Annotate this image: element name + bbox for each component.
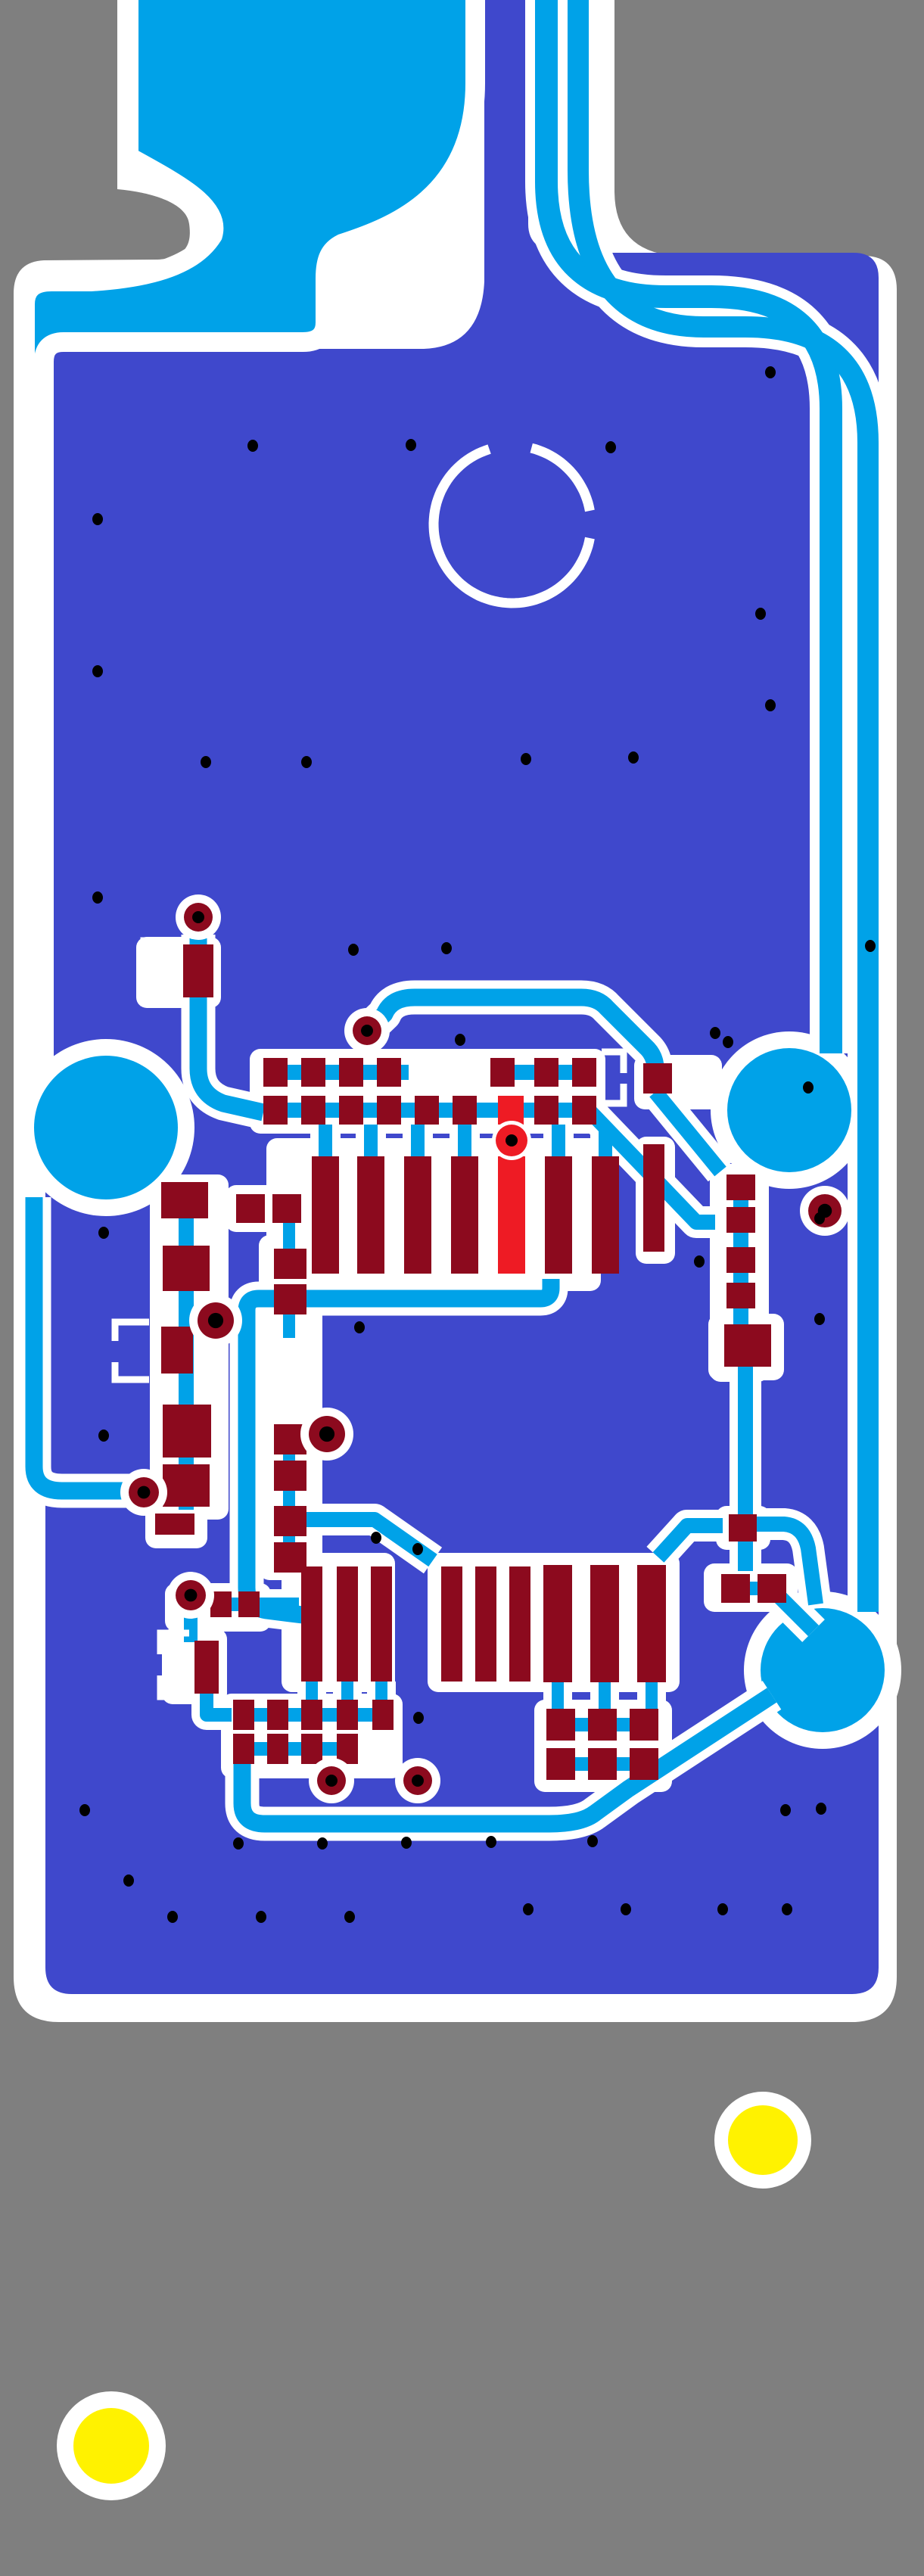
via-drill-icon bbox=[361, 1025, 373, 1037]
drill-dot bbox=[765, 699, 776, 711]
drill-dot bbox=[717, 1903, 728, 1915]
smd-pad[interactable] bbox=[163, 1405, 211, 1458]
smd-pad[interactable] bbox=[233, 1700, 254, 1730]
smd-pad[interactable] bbox=[630, 1748, 658, 1780]
smd-pad[interactable] bbox=[238, 1591, 260, 1617]
drill-dot bbox=[628, 751, 639, 764]
smd-pad[interactable] bbox=[534, 1096, 558, 1125]
smd-pad[interactable] bbox=[415, 1096, 439, 1125]
via-drill-icon bbox=[506, 1134, 518, 1146]
smd-pad[interactable] bbox=[301, 1058, 325, 1087]
mounting-hole[interactable] bbox=[73, 2408, 149, 2484]
smd-pad[interactable] bbox=[337, 1700, 358, 1730]
drill-dot bbox=[710, 1027, 720, 1039]
drill-dot bbox=[587, 1835, 598, 1847]
drill-dot bbox=[401, 1837, 412, 1849]
smd-pad[interactable] bbox=[637, 1565, 666, 1682]
drill-dot bbox=[455, 1034, 465, 1046]
drill-dot bbox=[413, 1712, 424, 1724]
smd-pad[interactable] bbox=[630, 1709, 658, 1741]
smd-pad[interactable] bbox=[475, 1566, 496, 1682]
smd-pad[interactable] bbox=[155, 1514, 194, 1535]
drill-dot bbox=[233, 1837, 244, 1850]
via-drill-icon bbox=[208, 1313, 223, 1328]
drill-dot bbox=[201, 756, 211, 768]
smd-pad[interactable] bbox=[372, 1700, 394, 1730]
via-drill-icon bbox=[192, 911, 204, 923]
drill-dot bbox=[814, 1313, 825, 1325]
via-drill-icon bbox=[412, 1775, 424, 1787]
smd-pad[interactable] bbox=[301, 1096, 325, 1125]
smd-pad[interactable] bbox=[721, 1574, 750, 1603]
drill-dot bbox=[317, 1837, 328, 1850]
smd-pad[interactable] bbox=[590, 1565, 619, 1682]
smd-pad[interactable] bbox=[377, 1058, 401, 1087]
drill-dot bbox=[723, 1036, 733, 1048]
smd-pad[interactable] bbox=[729, 1514, 757, 1542]
drill-dot bbox=[523, 1903, 534, 1915]
copper-pour-circle[interactable] bbox=[727, 1048, 851, 1172]
pcb-canvas[interactable] bbox=[0, 0, 924, 2576]
drill-dot bbox=[92, 513, 103, 525]
drill-dot bbox=[79, 1804, 90, 1816]
smd-pad[interactable] bbox=[274, 1506, 306, 1536]
smd-pad[interactable] bbox=[274, 1461, 306, 1491]
smd-pad[interactable] bbox=[163, 1246, 210, 1291]
drill-dot bbox=[412, 1543, 423, 1555]
drill-dot bbox=[441, 942, 452, 954]
drill-dot bbox=[780, 1804, 791, 1816]
copper-trace[interactable] bbox=[325, 1125, 605, 1158]
drill-dot bbox=[406, 439, 416, 451]
smd-pad[interactable] bbox=[545, 1156, 572, 1274]
smd-pad[interactable] bbox=[267, 1734, 288, 1764]
smd-pad[interactable] bbox=[726, 1283, 755, 1308]
smd-pad[interactable] bbox=[267, 1700, 288, 1730]
smd-pad[interactable] bbox=[534, 1058, 558, 1087]
smd-pad[interactable] bbox=[377, 1096, 401, 1125]
drill-dot bbox=[98, 1430, 109, 1442]
smd-pad[interactable] bbox=[357, 1156, 384, 1274]
drill-dot bbox=[354, 1321, 365, 1333]
smd-pad[interactable] bbox=[543, 1565, 572, 1682]
smd-pad[interactable] bbox=[588, 1709, 617, 1741]
via-drill-icon bbox=[185, 1589, 198, 1602]
smd-pad[interactable] bbox=[236, 1194, 265, 1223]
smd-pad[interactable] bbox=[163, 1464, 210, 1507]
smd-pad[interactable] bbox=[451, 1156, 478, 1274]
smd-pad[interactable] bbox=[643, 1144, 664, 1252]
smd-pad[interactable] bbox=[572, 1058, 596, 1087]
smd-pad-highlighted[interactable] bbox=[498, 1156, 525, 1274]
smd-pad[interactable] bbox=[274, 1249, 306, 1279]
drill-dot bbox=[301, 756, 312, 768]
drill-dot bbox=[621, 1903, 631, 1915]
smd-pad[interactable] bbox=[272, 1194, 301, 1223]
smd-pad[interactable] bbox=[592, 1156, 619, 1274]
smd-pad[interactable] bbox=[726, 1247, 755, 1273]
drill-dot bbox=[92, 891, 103, 904]
smd-pad[interactable] bbox=[441, 1566, 462, 1682]
drill-dot bbox=[782, 1903, 792, 1915]
smd-pad[interactable] bbox=[194, 1641, 219, 1694]
smd-pad-highlighted[interactable] bbox=[498, 1096, 524, 1125]
drill-dot bbox=[344, 1911, 355, 1923]
drill-dot bbox=[755, 608, 766, 620]
smd-pad[interactable] bbox=[726, 1207, 755, 1233]
smd-pad[interactable] bbox=[337, 1566, 358, 1682]
drill-dot bbox=[865, 940, 876, 952]
smd-pad[interactable] bbox=[263, 1058, 288, 1087]
drill-dot bbox=[167, 1911, 178, 1923]
copper-pour-circle[interactable] bbox=[34, 1056, 178, 1199]
smd-pad[interactable] bbox=[301, 1700, 322, 1730]
drill-dot bbox=[803, 1081, 814, 1094]
drill-dot bbox=[816, 1803, 826, 1815]
smd-pad[interactable] bbox=[263, 1096, 288, 1125]
smd-pad[interactable] bbox=[588, 1748, 617, 1780]
smd-pad[interactable] bbox=[724, 1324, 771, 1367]
drill-dot bbox=[98, 1227, 109, 1239]
smd-pad[interactable] bbox=[233, 1734, 254, 1764]
via-drill-icon bbox=[319, 1426, 334, 1442]
smd-pad[interactable] bbox=[453, 1096, 477, 1125]
smd-pad[interactable] bbox=[301, 1566, 322, 1682]
smd-pad[interactable] bbox=[337, 1734, 358, 1764]
drill-dot bbox=[765, 366, 776, 378]
drill-dot bbox=[521, 753, 531, 765]
smd-pad[interactable] bbox=[183, 944, 213, 997]
smd-pad[interactable] bbox=[339, 1096, 363, 1125]
smd-pad[interactable] bbox=[726, 1174, 755, 1200]
smd-pad[interactable] bbox=[509, 1566, 530, 1682]
smd-pad[interactable] bbox=[546, 1709, 575, 1741]
via-drill-icon bbox=[138, 1486, 151, 1499]
smd-pad[interactable] bbox=[404, 1156, 431, 1274]
smd-pad[interactable] bbox=[643, 1063, 672, 1094]
drill-dot bbox=[348, 944, 359, 956]
smd-pad[interactable] bbox=[312, 1156, 339, 1274]
smd-pad[interactable] bbox=[161, 1327, 193, 1374]
mounting-hole[interactable] bbox=[728, 2105, 798, 2175]
drill-dot bbox=[371, 1532, 381, 1544]
smd-pad[interactable] bbox=[274, 1542, 306, 1573]
smd-pad[interactable] bbox=[490, 1058, 515, 1087]
smd-pad[interactable] bbox=[274, 1284, 306, 1314]
drill-dot bbox=[256, 1911, 266, 1923]
smd-pad[interactable] bbox=[301, 1734, 322, 1764]
smd-pad[interactable] bbox=[339, 1058, 363, 1087]
drill-dot bbox=[694, 1255, 705, 1268]
pcb-viewport[interactable] bbox=[0, 0, 924, 2576]
smd-pad[interactable] bbox=[161, 1182, 208, 1218]
drill-dot bbox=[486, 1836, 496, 1848]
drill-dot bbox=[247, 440, 258, 452]
smd-pad[interactable] bbox=[572, 1096, 596, 1125]
smd-pad[interactable] bbox=[371, 1566, 392, 1682]
copper-pour-circle[interactable] bbox=[761, 1608, 885, 1732]
drill-dot bbox=[92, 665, 103, 677]
via-drill-icon bbox=[325, 1775, 338, 1787]
drill-dot bbox=[605, 441, 616, 453]
drill-dot bbox=[123, 1874, 134, 1887]
drill-dot bbox=[814, 1212, 825, 1224]
smd-pad[interactable] bbox=[758, 1574, 786, 1603]
smd-pad[interactable] bbox=[546, 1748, 575, 1780]
